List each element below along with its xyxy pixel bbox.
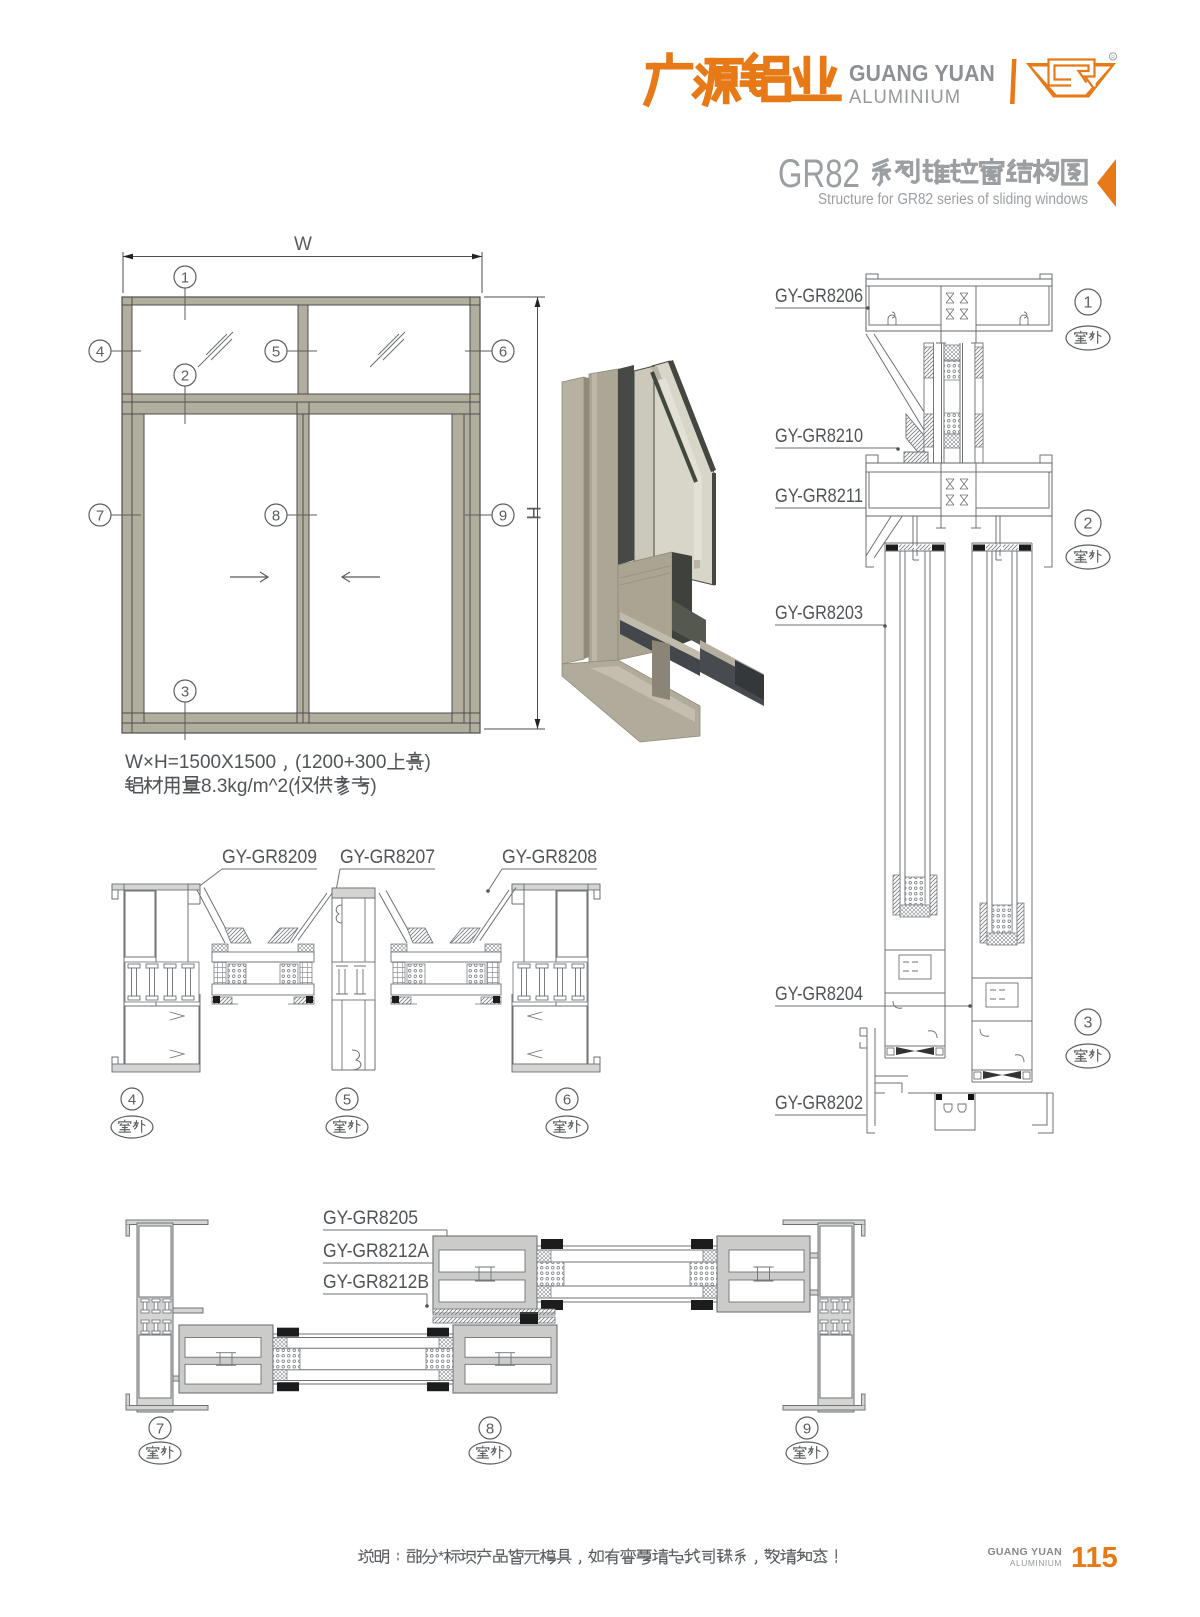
- svg-text:GY-GR8208: GY-GR8208: [502, 847, 597, 868]
- svg-text:GY-GR8206: GY-GR8206: [775, 286, 863, 307]
- svg-text:3: 3: [1084, 1015, 1093, 1032]
- svg-text:7: 7: [156, 1420, 164, 1437]
- svg-text:3: 3: [181, 683, 189, 700]
- svg-text:GY-GR8212B: GY-GR8212B: [323, 1272, 429, 1293]
- svg-text:GY-GR8202: GY-GR8202: [775, 1093, 863, 1114]
- svg-text:7: 7: [96, 507, 104, 524]
- svg-text:GUANG YUAN: GUANG YUAN: [987, 1546, 1062, 1558]
- svg-text:9: 9: [499, 507, 507, 524]
- svg-text:8.3kg/m^2(: 8.3kg/m^2(: [201, 776, 295, 797]
- svg-text:GY-GR8209: GY-GR8209: [222, 847, 317, 868]
- svg-text:5: 5: [343, 1091, 351, 1108]
- svg-text:8: 8: [486, 1420, 494, 1437]
- svg-text:GY-GR8210: GY-GR8210: [775, 426, 863, 447]
- svg-text:4: 4: [96, 343, 104, 360]
- svg-text:GY-GR8205: GY-GR8205: [323, 1208, 418, 1229]
- svg-text:2: 2: [1084, 516, 1093, 533]
- svg-text:H: H: [522, 506, 543, 520]
- svg-text:115: 115: [1071, 1542, 1118, 1574]
- svg-text:2: 2: [181, 367, 189, 384]
- svg-text:1: 1: [181, 269, 189, 286]
- svg-text:5: 5: [272, 343, 280, 360]
- svg-text:8: 8: [272, 507, 280, 524]
- svg-text:6: 6: [563, 1091, 571, 1108]
- svg-text:6: 6: [499, 343, 507, 360]
- svg-text:): ): [370, 776, 376, 797]
- svg-text:1: 1: [1084, 295, 1093, 312]
- svg-text:*: *: [438, 1549, 444, 1566]
- svg-text:GUANG YUAN: GUANG YUAN: [849, 60, 995, 86]
- svg-text:R: R: [1111, 55, 1115, 61]
- svg-text:GR82: GR82: [778, 152, 860, 196]
- svg-text:Structure for GR82 series of s: Structure for GR82 series of sliding win…: [818, 191, 1088, 208]
- svg-text:GY-GR8203: GY-GR8203: [775, 603, 863, 624]
- svg-text:ALUMINIUM: ALUMINIUM: [1010, 1558, 1062, 1568]
- svg-text:ALUMINIUM: ALUMINIUM: [849, 87, 961, 108]
- svg-text:): ): [424, 752, 430, 773]
- svg-text:9: 9: [803, 1420, 811, 1437]
- svg-text:GY-GR8204: GY-GR8204: [775, 984, 863, 1005]
- svg-text:GY-GR8207: GY-GR8207: [340, 847, 435, 868]
- svg-text:4: 4: [128, 1091, 136, 1108]
- svg-text:W: W: [294, 234, 312, 255]
- svg-text:(1200+300: (1200+300: [295, 752, 386, 773]
- svg-text:GY-GR8212A: GY-GR8212A: [323, 1241, 429, 1262]
- svg-text:GY-GR8211: GY-GR8211: [775, 486, 863, 507]
- svg-text:W×H=1500X1500: W×H=1500X1500: [125, 752, 276, 773]
